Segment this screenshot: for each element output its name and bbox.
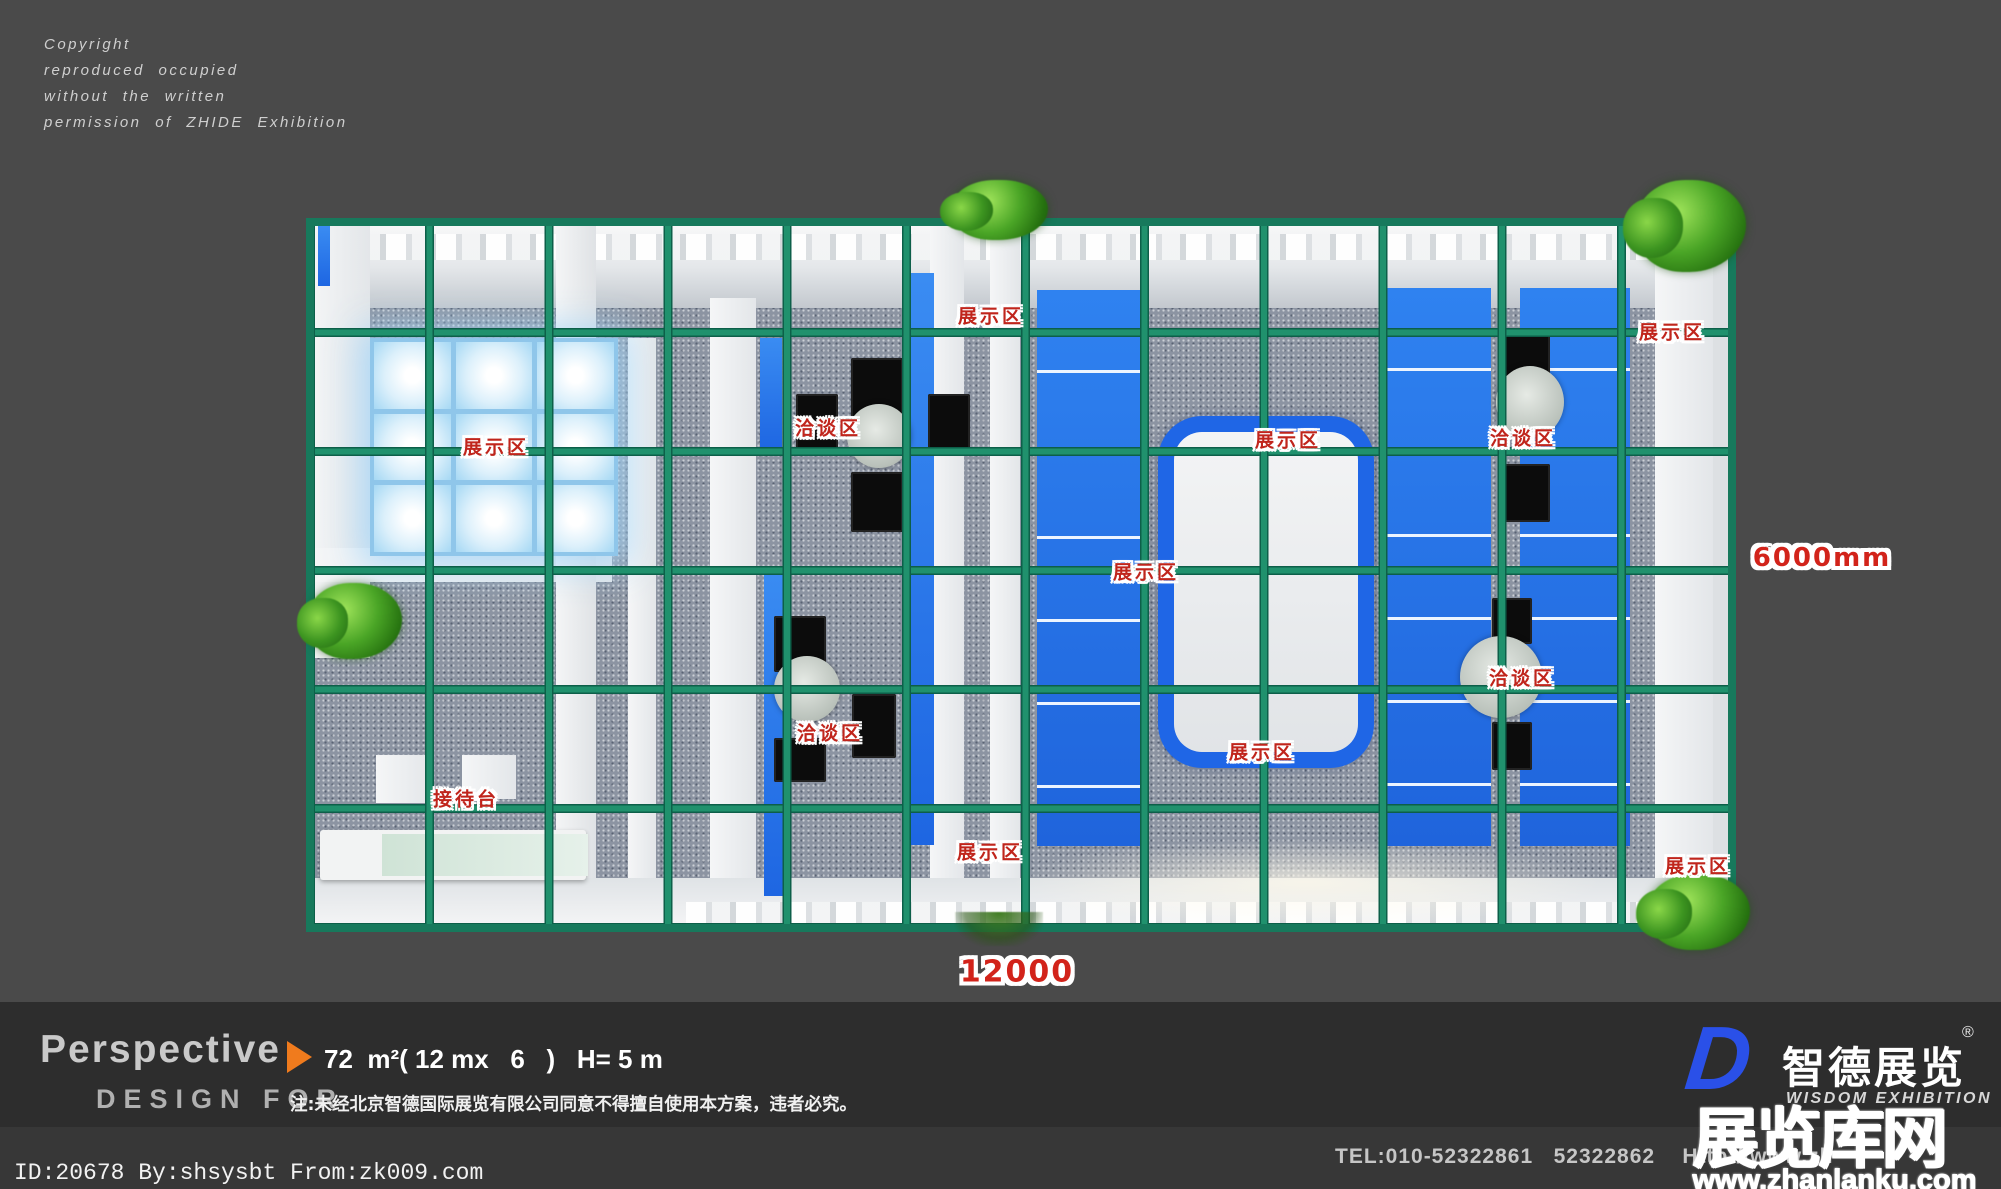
lightbox-tile [456,342,533,409]
meeting-chair [1504,464,1550,522]
plant-icon [1648,874,1750,950]
zhide-logo-subtitle: WISDOM EXHIBITION [1786,1090,1992,1108]
grass-icon [955,912,1043,946]
light-glow [1006,838,1606,926]
copyright-line: reproduced occupied [44,58,348,84]
file-id-line: ID:20678 By:shsysbt From:zk009.com [14,1160,483,1186]
meeting-chair [774,738,826,782]
reception-cube [462,755,516,799]
wall-right-edge [1713,228,1736,932]
contact-line: TEL:010-52322861 52322862 Http://www.zh [1335,1145,1833,1169]
lightbox-tile [456,485,533,552]
wall-column [930,218,964,932]
display-frame-seam [1266,434,1268,750]
wall-column [556,218,596,930]
registered-mark-icon: ® [1962,1024,1974,1042]
dimension-label-height: 6000mm [1753,543,1892,573]
legal-note: 注:未经北京智德国际展览有限公司同意不得擅自使用本方案，违者必究。 [290,1091,857,1116]
ceiling-slats-top [336,234,1706,260]
meeting-chair [851,472,903,532]
meeting-table [847,404,911,468]
design-poster: Copyright reproduced occupied without th… [0,0,2001,1189]
reception-cube [376,755,432,803]
arrow-right-icon [287,1041,312,1073]
dimension-label-width: 12000 [960,955,1074,990]
lightbox-tile [537,485,614,552]
lightbox-tile [374,485,451,552]
meeting-chair [1492,722,1532,770]
meeting-chair [796,394,838,456]
reception-desk-glass [382,834,588,876]
meeting-table [774,656,840,722]
meeting-chair [852,694,896,758]
wall-column [990,218,1020,932]
zhide-logo-name: 智德展览 [1782,1034,1966,1096]
lightbox-tile [374,414,451,481]
copyright-line: without the written [44,84,348,110]
booth-spec: 72 m²( 12 mx 6 ) H= 5 m [324,1044,663,1075]
wall-right [1655,228,1713,932]
website-url: Http://www.zh [1655,1145,1833,1168]
copyright-line: permission of ZHIDE Exhibition [44,110,348,136]
blue-strip [318,226,330,286]
blue-floor-panel [1385,288,1491,846]
blue-shelf-panel [1037,290,1141,846]
meeting-table [1460,636,1542,718]
meeting-chair [928,394,970,456]
blue-strip [908,273,934,845]
blue-strip [760,338,782,450]
copyright-line: Copyright [44,32,348,58]
lightbox-tile [537,342,614,409]
lightbox-tile [374,342,451,409]
lightbox-tile [537,414,614,481]
wall-column [710,298,756,898]
copyright-notice: Copyright reproduced occupied without th… [44,32,348,136]
rounded-display-frame [1158,416,1374,768]
zhide-logo-d-icon: D [1681,1014,1755,1104]
floor-plan [306,218,1736,932]
lightbox-display [370,338,618,556]
meeting-table [1496,366,1564,438]
lightbox-tile [456,414,533,481]
tel-number: TEL:010-52322861 52322862 [1335,1145,1655,1168]
perspective-title: Perspective [40,1028,281,1072]
wall-column [628,338,656,898]
